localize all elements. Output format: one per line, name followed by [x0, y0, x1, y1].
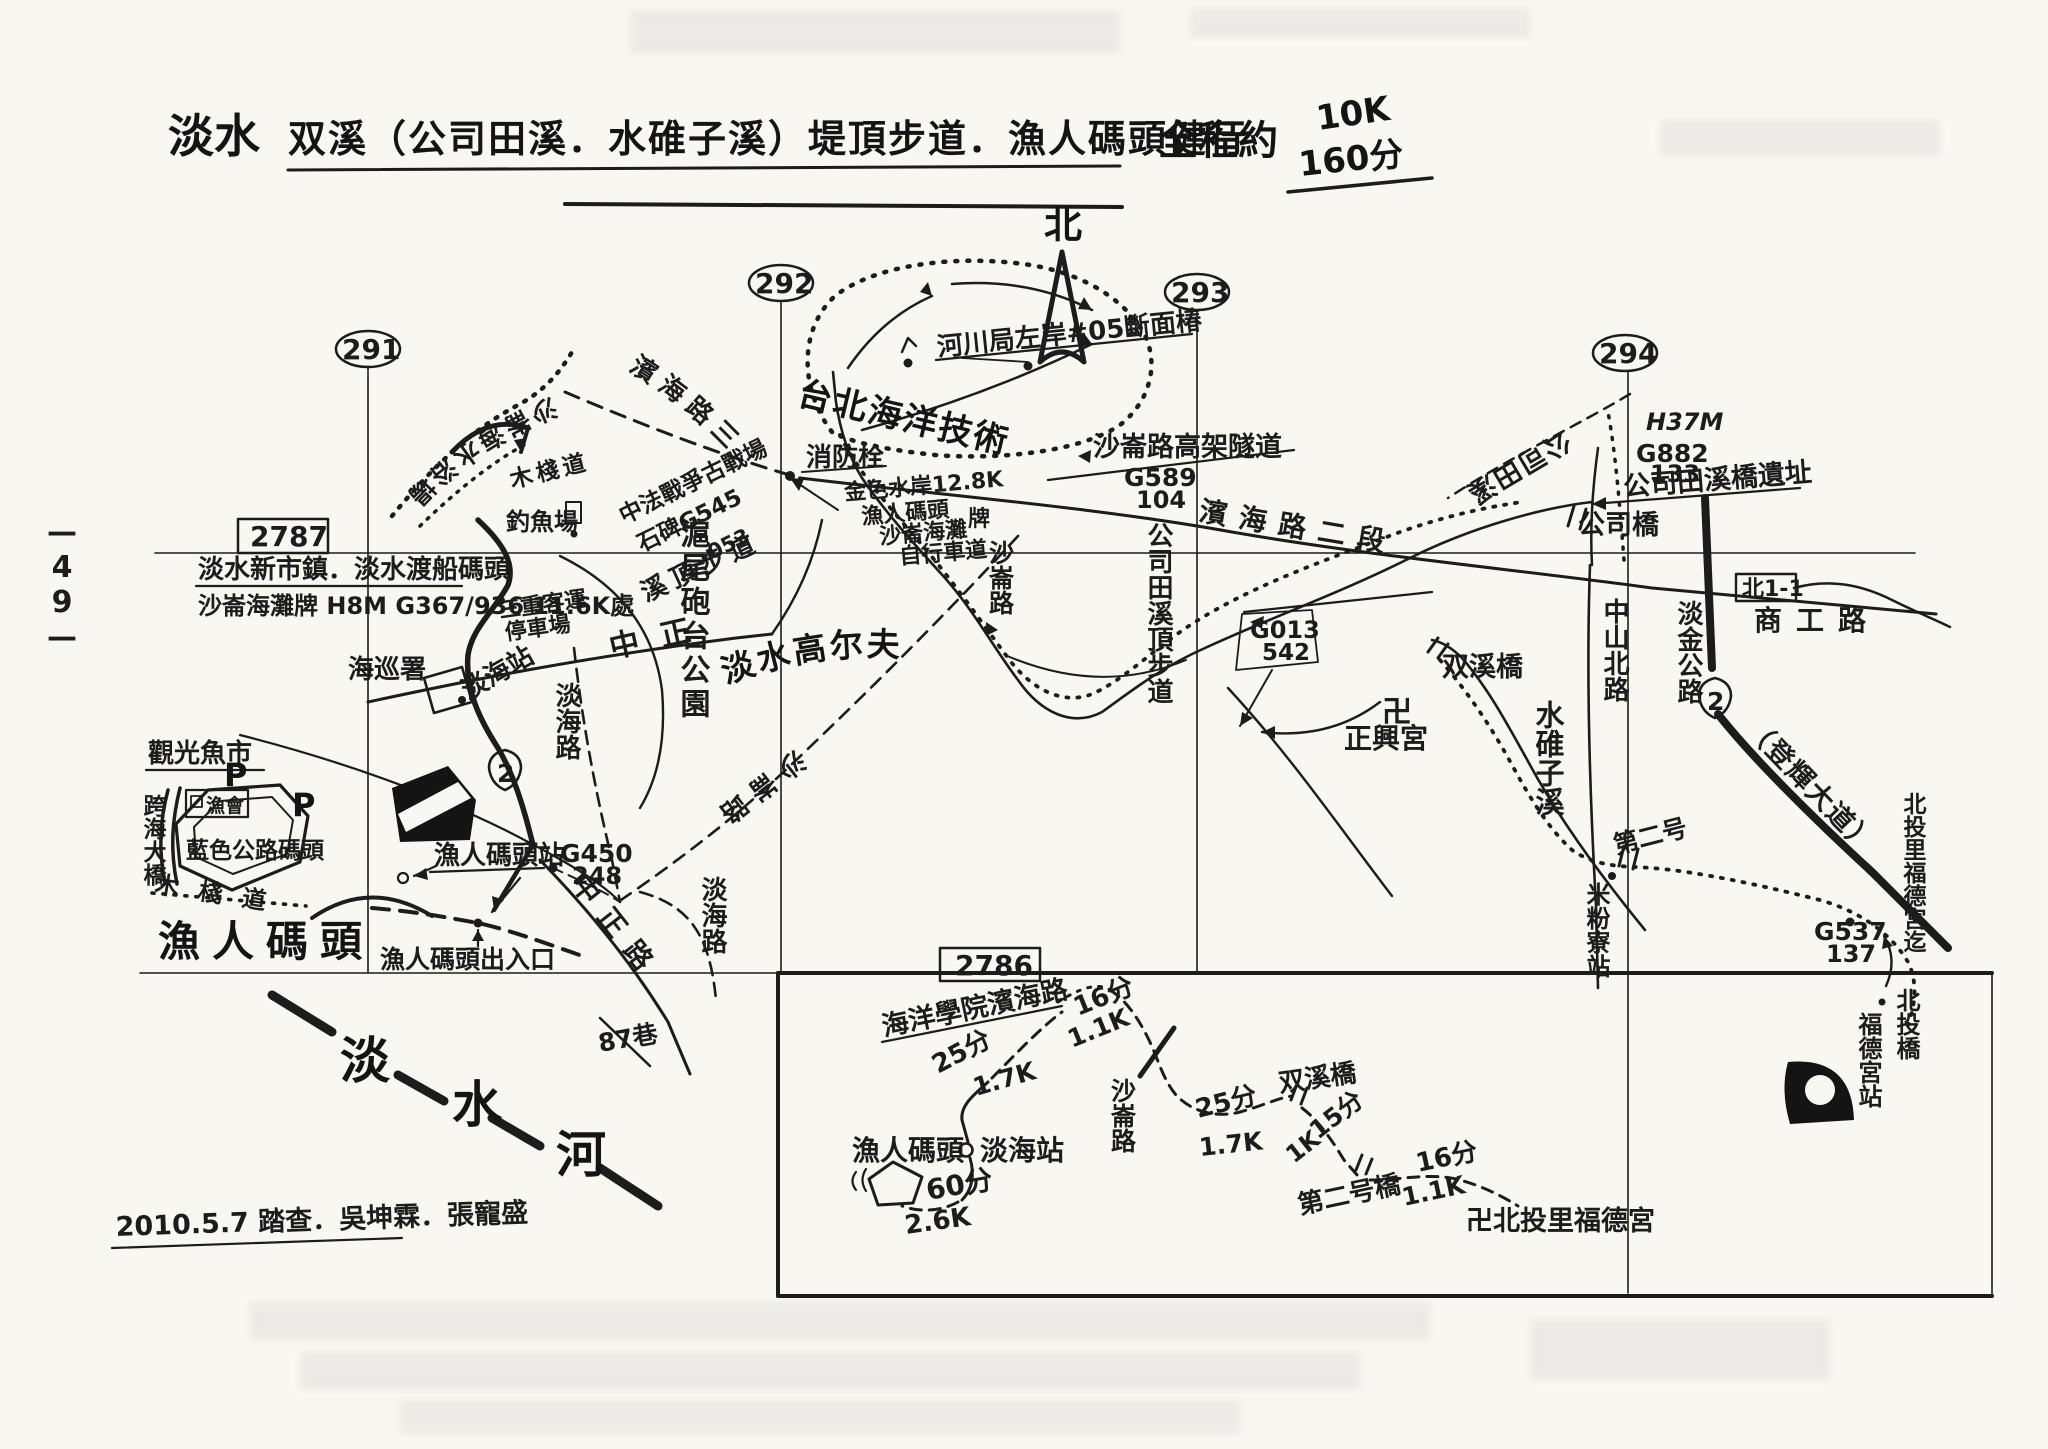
gongsitian-creek-label: 公司田溪 [1461, 424, 1577, 510]
parking-icon: P [224, 756, 247, 794]
danjin-hwy-label: 淡金公路 [1673, 600, 1704, 704]
fishermans-wharf-label: 漁人碼頭 [158, 917, 374, 966]
bridge-ruins-height: H37M [1646, 408, 1723, 436]
route2-badge: 2 [497, 759, 514, 788]
inset-wharf: 漁人碼頭 [852, 1134, 965, 1167]
wharf-station-label: 漁人碼頭站 [434, 841, 564, 871]
inset-danhai-stop: 淡海站 [980, 1134, 1064, 1167]
g537-marker-bottom: 137 [1826, 940, 1876, 968]
inset-endpoint: 卍北投里福德宮 [1466, 1205, 1655, 1237]
inset-time: 25分 [1192, 1081, 1260, 1125]
wharf-entrance-label: 漁人碼頭出入口 [380, 945, 555, 974]
coast-guard-label: 海巡署 [348, 655, 426, 685]
inset-shalun-rd: 沙崙路 [1108, 1078, 1138, 1153]
denghui-blvd-label: （登輝大道） [1739, 713, 1882, 860]
golf-course-label: 淡水高尔夫球場 [0, 0, 903, 691]
intake-note-label: 沙崙圳取水口石碑 [0, 0, 15, 7]
shanggong-rd-label: 商工路 [1754, 604, 1880, 637]
g589-marker-bottom: 104 [1136, 486, 1186, 514]
newtown-note-label: 淡水新市鎮．淡水渡船碼頭 [198, 554, 511, 585]
fudegong-stop-label: 福德宮站 [1854, 1012, 1883, 1108]
stray-line [565, 204, 1122, 207]
shuangxi-bridge-label: 双溪橋 [1442, 652, 1524, 683]
route-north1-1-box: 北1-1 [1742, 577, 1804, 602]
river-char: 水 [452, 1076, 503, 1134]
title-distance: 10K [1314, 89, 1394, 139]
shalun-beach-label: 沙崙海水浴場 [400, 392, 561, 514]
title-area: 淡水 [168, 109, 261, 163]
route2-badge: 2 [1707, 687, 1724, 716]
ocean-college-label: 台北海洋技術學院 [0, 0, 1013, 463]
title-time: 160分 [1297, 134, 1406, 185]
title-route: 双溪（公司田溪．水碓子溪）堤頂步道．漁人碼頭健行 [288, 117, 1248, 161]
zhongshan-n-label: 中山北路 [1599, 598, 1629, 702]
map-title: 淡水 双溪（公司田溪．水碓子溪）堤頂步道．漁人碼頭健行 全程約 10K 160分 [168, 89, 1432, 192]
grid-col-292: 292 [755, 267, 813, 300]
inset-dist: 1.7K [970, 1056, 1041, 1102]
grid-col-293: 293 [1171, 276, 1229, 309]
scanned-map-sheet: 淡水 双溪（公司田溪．水碓子溪）堤頂步道．漁人碼頭健行 全程約 10K 160分… [0, 0, 2048, 1449]
fishers-assoc-label: 漁會 [206, 794, 245, 817]
boardwalk-label: 木棧道 [506, 448, 592, 494]
grid-col-294: 294 [1599, 337, 1657, 370]
g450-marker-bottom: 248 [572, 862, 622, 890]
tamsui-river: 淡 水 河 [272, 995, 658, 1206]
golden-coast-sign: 牌 [968, 506, 990, 532]
gongsitian-levee-label: 公司田溪頂步道 [1143, 522, 1173, 704]
shalun-viaduct-label: 沙崙路高架隧道 [1093, 431, 1282, 463]
danhai-rd-label-b: 淡海路 [697, 876, 727, 954]
fishing-area-label: 釣魚場 [506, 508, 578, 536]
gongsi-bridge-label: 公司橋 [1578, 510, 1660, 541]
zhengxing-temple-label: 正興宮 [1344, 722, 1428, 755]
title-total-label: 全程約 [1157, 118, 1278, 164]
beitou-fudegong-end-label: 北投里福德宮迄 [1899, 792, 1928, 953]
north-label: 北 [1044, 203, 1082, 247]
grid-col-291: 291 [342, 333, 400, 366]
route-summary-diagram: 海洋學院濱海路口 16分 1.1K 25分 1.7K 漁人碼頭 淡海站 60分 … [0, 0, 1655, 1241]
shalun-rd-label: 沙崙路 [986, 540, 1016, 615]
binhai-sec2-label: 濱海路二段 [1197, 494, 1400, 560]
parking-icon: P [292, 786, 315, 824]
survey-note: 2010.5.7 踏查．吳坤霖．張寵盛 [115, 1197, 529, 1243]
river-char: 淡 [340, 1032, 391, 1090]
inset-second-bridge: 第二号橋 [1295, 1170, 1404, 1221]
grid-row-2787: 2787 [250, 520, 328, 553]
page-number: —49— [45, 515, 80, 655]
grid-row-2786: 2786 [955, 949, 1033, 982]
beitou-bridge-label: 北投橋 [1892, 988, 1920, 1060]
river-char: 河 [556, 1126, 606, 1184]
inset-dist: 1.7K [1198, 1126, 1266, 1162]
shalun-rd-label-b: 沙崙路 [706, 744, 810, 835]
blue-highway-pier-label: 藍色公路碼頭 [186, 837, 325, 864]
mifenliao-stop-label: 米粉寮站 [1582, 882, 1611, 978]
inset-time: 60分 [923, 1163, 995, 1207]
binhai-sec3-label: 濱海路三段 [0, 0, 750, 460]
shuiduizi-creek-label: 水碓子溪 [1531, 700, 1565, 816]
danhai-rd-label: 淡海路 [551, 682, 581, 760]
g013-marker-bottom: 542 [1262, 640, 1310, 666]
boardwalk-label-b: 木棧道 [152, 870, 288, 918]
